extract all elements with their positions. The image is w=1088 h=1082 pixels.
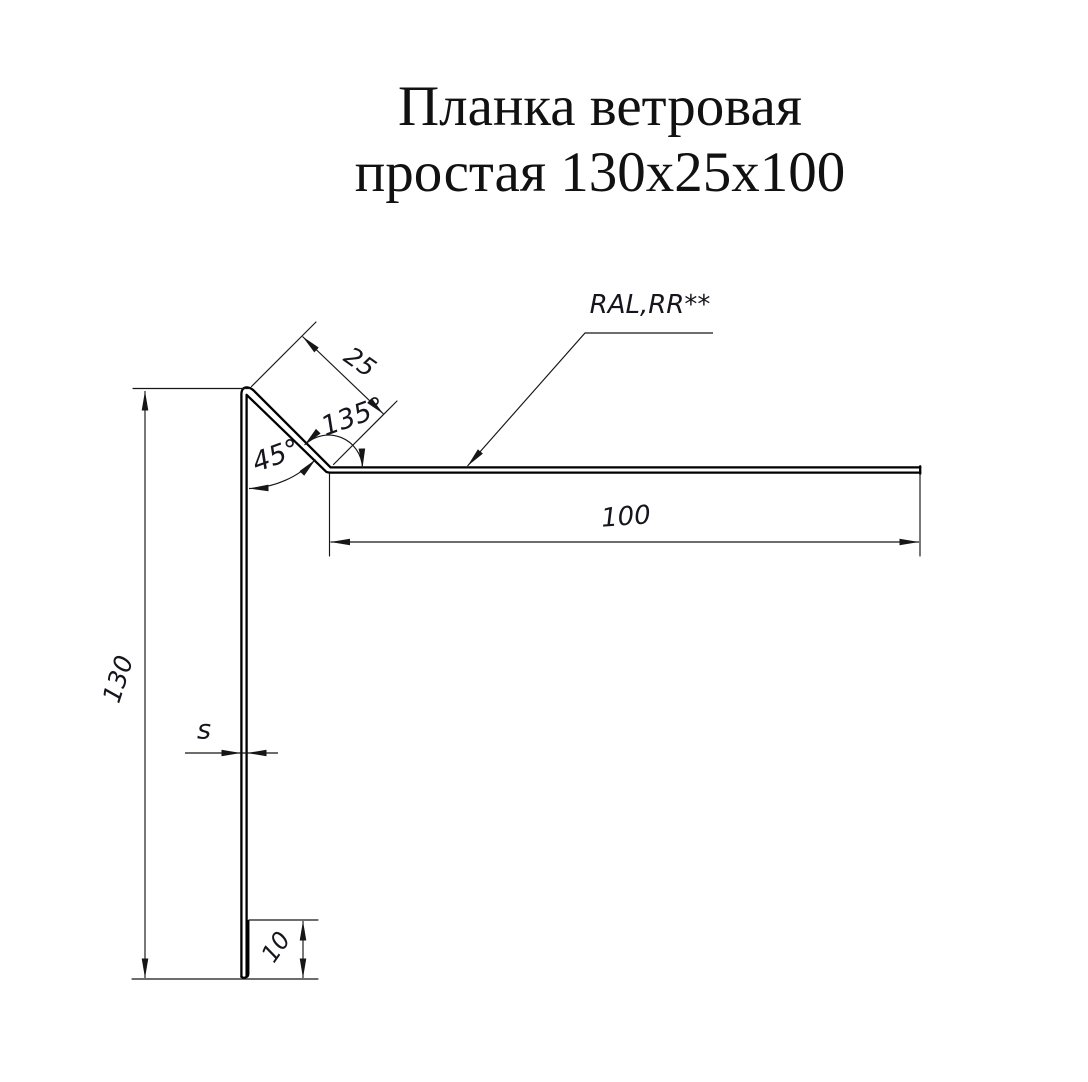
dim-label-thickness-s: s <box>197 715 211 746</box>
extension-lines <box>132 322 920 979</box>
profile-outline <box>241 387 920 978</box>
coating-note-label: RAL,RR** <box>590 290 711 320</box>
dimension-lines <box>145 333 919 978</box>
leader-line-coating <box>468 333 714 466</box>
profile-drawing <box>0 0 1088 1082</box>
dim-label-width-100: 100 <box>600 500 652 533</box>
profile-outer-surface <box>241 387 920 976</box>
technical-drawing-canvas: Планка ветровая простая 130x25x100 <box>0 0 1088 1082</box>
ext-25-upper <box>252 322 317 387</box>
profile-inner-surface <box>247 395 921 977</box>
